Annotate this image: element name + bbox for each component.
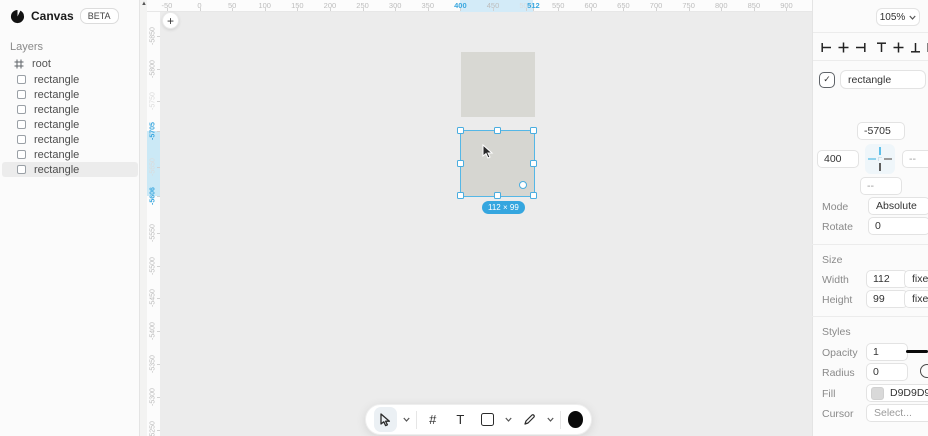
position-x-input[interactable]	[817, 150, 859, 168]
ruler-tick-mark	[623, 8, 624, 11]
resize-handle-left[interactable]	[457, 160, 464, 167]
scroll-up-arrow-icon[interactable]: ▲	[141, 1, 147, 7]
fill-hex-value: D9D9D9	[890, 387, 928, 399]
align-left-icon	[820, 41, 833, 54]
anchor-right-tick	[884, 158, 892, 160]
ruler-tick-mark	[363, 8, 364, 11]
add-button[interactable]: +	[162, 12, 179, 29]
fill-label: Fill	[822, 388, 835, 400]
ruler-tick-mark	[157, 430, 160, 431]
layer-row-rectangle[interactable]: rectangle	[2, 117, 138, 132]
layer-row-rectangle[interactable]: rectangle	[2, 132, 138, 147]
ruler-tick-mark	[157, 331, 160, 332]
width-input[interactable]	[866, 270, 908, 288]
bottom-toolbar: # T	[365, 404, 592, 435]
ruler-tick-label: -5400	[150, 322, 157, 340]
width-label: Width	[822, 274, 849, 286]
frame-tool-button[interactable]: #	[421, 407, 444, 432]
layer-row-rectangle[interactable]: rectangle	[2, 102, 138, 117]
rotate-input[interactable]	[868, 217, 928, 235]
resize-handle-right[interactable]	[530, 160, 537, 167]
resize-handle-bottom-right[interactable]	[530, 192, 537, 199]
opacity-input[interactable]	[866, 343, 908, 361]
width-mode-select[interactable]: fixed	[904, 270, 928, 288]
ruler-tick-mark	[754, 8, 755, 11]
cursor-tool-icon	[379, 413, 392, 427]
radius-preview-icon	[920, 364, 928, 378]
ruler-tick-mark	[428, 8, 429, 11]
rectangle-layer-icon	[17, 120, 26, 129]
ruler-tick-mark	[157, 233, 160, 234]
opacity-slider[interactable]	[906, 350, 928, 353]
text-tool-button[interactable]: T	[449, 407, 472, 432]
app-title: Canvas	[31, 9, 74, 23]
layer-list: rectanglerectanglerectanglerectanglerect…	[0, 72, 140, 177]
align-center-vertical-icon	[892, 41, 905, 54]
ruler-tick-label: -5750	[150, 92, 157, 110]
cursor-label: Cursor	[822, 408, 854, 420]
rectangle-layer-icon	[17, 135, 26, 144]
ruler-tick-label: -5300	[150, 388, 157, 406]
align-center-vertical-button[interactable]	[891, 39, 905, 55]
ruler-tick-label: -5550	[150, 224, 157, 242]
chevron-down-icon	[547, 417, 554, 422]
layer-label: rectangle	[34, 164, 79, 176]
fill-input[interactable]: D9D9D9	[866, 384, 928, 402]
divider	[813, 60, 928, 61]
ruler-tick-mark	[558, 8, 559, 11]
ruler-tick-mark	[157, 298, 160, 299]
toolbar-divider	[416, 411, 417, 429]
ruler-tick-mark	[460, 8, 461, 11]
align-right-icon	[854, 41, 867, 54]
sidebar: Canvas BETA Layers root rectanglerectang…	[0, 0, 140, 436]
ruler-tick-mark	[157, 196, 160, 197]
fill-color-swatch[interactable]	[871, 387, 884, 400]
select-tool-button[interactable]	[374, 407, 397, 432]
sidebar-header: Canvas BETA	[10, 8, 119, 24]
size-heading: Size	[822, 254, 842, 266]
frame-hash-icon	[14, 59, 24, 69]
rectangle-layer-icon	[17, 150, 26, 159]
layer-name-row: ✓	[819, 70, 926, 89]
radius-label: Radius	[822, 367, 855, 379]
rectangle-tool-button[interactable]	[477, 407, 500, 432]
rectangle-layer-icon	[17, 165, 26, 174]
ruler-tick-label: -5450	[150, 289, 157, 307]
resize-handle-bottom[interactable]	[494, 192, 501, 199]
chevron-down-icon	[909, 15, 916, 20]
ruler-tick-mark	[157, 397, 160, 398]
sidebar-scroll-strip[interactable]	[140, 0, 147, 436]
ruler-tick-mark	[157, 266, 160, 267]
align-bottom-button[interactable]	[908, 39, 922, 55]
mouse-cursor-icon	[481, 144, 495, 160]
ruler-tick-label: -5606	[150, 187, 157, 205]
opacity-label: Opacity	[822, 347, 858, 359]
chevron-down-icon	[403, 417, 410, 422]
radius-input[interactable]	[866, 363, 908, 381]
layer-label: rectangle	[34, 89, 79, 101]
select-tool-dropdown[interactable]	[402, 407, 411, 432]
pen-tool-button[interactable]	[518, 407, 541, 432]
cursor-select[interactable]: Select...	[866, 404, 928, 422]
height-input[interactable]	[866, 290, 908, 308]
anchor-top-tick	[879, 147, 881, 155]
layer-label: rectangle	[34, 119, 79, 131]
layer-label: rectangle	[34, 149, 79, 161]
rotate-label: Rotate	[822, 221, 853, 233]
resize-handle-top-left[interactable]	[457, 127, 464, 134]
app-window: Canvas BETA Layers root rectanglerectang…	[0, 0, 928, 436]
ruler-tick-label: -5705	[150, 122, 157, 140]
ruler-tick-mark	[786, 8, 787, 11]
ruler-tick-mark	[656, 8, 657, 11]
root-label: root	[32, 58, 51, 70]
resize-handle-top[interactable]	[494, 127, 501, 134]
beta-badge: BETA	[80, 8, 119, 24]
chevron-down-icon	[505, 417, 512, 422]
ruler-tick-label: -5500	[150, 257, 157, 275]
ruler-tick-mark	[493, 8, 494, 11]
ruler-tick-mark	[395, 8, 396, 11]
anchor-center-mark	[878, 157, 882, 161]
divider	[812, 316, 928, 317]
align-right-button[interactable]	[853, 39, 867, 55]
anchor-selector[interactable]	[865, 144, 895, 174]
align-top-icon	[875, 41, 888, 54]
ruler-tick-mark	[721, 8, 722, 11]
align-center-horizontal-icon	[837, 41, 850, 54]
layer-label: rectangle	[34, 74, 79, 86]
ruler-tick-label: -5800	[150, 60, 157, 78]
corner-radius-handle[interactable]	[519, 181, 527, 189]
ruler-tick-mark	[200, 8, 201, 11]
ruler-tick-mark	[157, 69, 160, 70]
mode-label: Mode	[822, 201, 848, 213]
zoom-dropdown[interactable]: 105%	[876, 8, 920, 26]
ruler-tick-mark	[157, 101, 160, 102]
divider	[813, 32, 928, 33]
align-top-button[interactable]	[874, 39, 888, 55]
ruler-tick-mark	[157, 131, 160, 132]
ruler-tick-mark	[167, 8, 168, 11]
layer-row-rectangle[interactable]: rectangle	[2, 147, 138, 162]
styles-heading: Styles	[822, 326, 851, 338]
ruler-tick-mark	[232, 8, 233, 11]
ruler-tick-mark	[689, 8, 690, 11]
position-right-input[interactable]	[902, 150, 928, 168]
color-swatch-button[interactable]	[568, 411, 583, 428]
zoom-level: 105%	[880, 12, 906, 23]
layer-label: rectangle	[34, 134, 79, 146]
align-bottom-icon	[909, 41, 922, 54]
height-mode-select[interactable]: fixed	[904, 290, 928, 308]
layer-name-input[interactable]	[840, 70, 926, 89]
pen-tool-dropdown[interactable]	[546, 407, 555, 432]
layers-heading: Layers	[10, 41, 43, 53]
ruler-tick-mark	[330, 8, 331, 11]
ruler-tick-label: -5850	[150, 27, 157, 45]
mode-select[interactable]: Absolute	[868, 197, 928, 215]
ruler-tick-mark	[265, 8, 266, 11]
ruler-tick-mark	[297, 8, 298, 11]
resize-handle-top-right[interactable]	[530, 127, 537, 134]
ruler-tick-label: -5650	[150, 158, 157, 176]
rectangle-layer-icon	[17, 75, 26, 84]
horizontal-ruler: -500501001502002503003504004505005125506…	[147, 0, 812, 12]
anchor-bottom-tick	[879, 163, 881, 171]
rectangle-tool-icon	[481, 413, 494, 426]
layer-label: rectangle	[34, 104, 79, 116]
layer-row-rectangle[interactable]: rectangle	[2, 162, 138, 177]
align-center-horizontal-button[interactable]	[836, 39, 850, 55]
divider	[812, 244, 928, 245]
layer-row-rectangle[interactable]: rectangle	[2, 72, 138, 87]
align-left-button[interactable]	[819, 39, 833, 55]
shape-tool-dropdown[interactable]	[504, 407, 513, 432]
ruler-tick-mark	[157, 364, 160, 365]
ruler-tick-mark	[591, 8, 592, 11]
pen-tool-icon	[523, 413, 536, 426]
ruler-tick-mark	[157, 167, 160, 168]
alignment-toolbar	[819, 38, 928, 56]
toolbar-divider	[560, 411, 561, 429]
canvas-rectangle-1[interactable]	[461, 52, 535, 117]
resize-handle-bottom-left[interactable]	[457, 192, 464, 199]
canvas-logo-icon	[10, 9, 25, 24]
rectangle-layer-icon	[17, 90, 26, 99]
ruler-tick-label: -5250	[150, 421, 157, 436]
position-y-input[interactable]	[857, 122, 905, 140]
rectangle-layer-icon	[17, 105, 26, 114]
ruler-tick-mark	[533, 8, 534, 11]
height-label: Height	[822, 294, 852, 306]
size-badge: 112 × 99	[482, 201, 525, 214]
layer-row-root[interactable]: root	[0, 56, 140, 72]
anchor-left-tick	[868, 158, 876, 160]
ruler-tick-label: -5350	[150, 355, 157, 373]
ruler-tick-mark	[157, 36, 160, 37]
position-bottom-input[interactable]	[860, 177, 902, 195]
layer-row-rectangle[interactable]: rectangle	[2, 87, 138, 102]
vertical-ruler: -5850-5800-5750-5705-5650-5606-5550-5500…	[147, 12, 160, 436]
visibility-checkbox[interactable]: ✓	[819, 72, 835, 88]
